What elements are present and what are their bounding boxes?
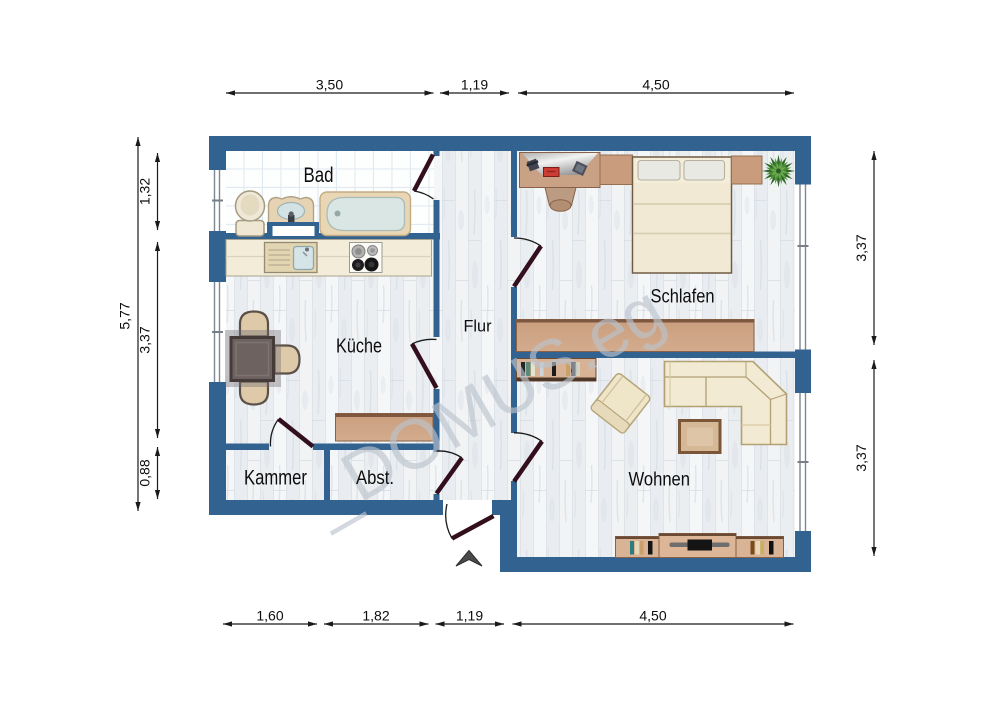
svg-text:1,82: 1,82 (362, 608, 389, 624)
svg-text:3,37: 3,37 (137, 326, 153, 353)
svg-text:5,77: 5,77 (117, 302, 133, 329)
svg-text:4,50: 4,50 (642, 77, 669, 93)
svg-text:Bad: Bad (304, 164, 334, 187)
svg-text:Wohnen: Wohnen (629, 469, 691, 491)
svg-text:Abst.: Abst. (356, 467, 394, 489)
svg-text:Kammer: Kammer (244, 467, 307, 490)
svg-text:4,50: 4,50 (639, 608, 666, 624)
svg-text:0,88: 0,88 (137, 459, 153, 486)
svg-text:1,19: 1,19 (461, 77, 488, 93)
svg-text:1,19: 1,19 (456, 608, 483, 624)
svg-text:1,32: 1,32 (137, 178, 153, 205)
svg-text:3,50: 3,50 (316, 77, 343, 93)
svg-text:3,37: 3,37 (853, 234, 869, 261)
svg-text:Küche: Küche (336, 336, 382, 358)
svg-text:Schlafen: Schlafen (651, 286, 715, 308)
svg-text:3,37: 3,37 (853, 444, 869, 471)
svg-text:1,60: 1,60 (256, 608, 283, 624)
svg-text:Flur: Flur (464, 318, 492, 336)
